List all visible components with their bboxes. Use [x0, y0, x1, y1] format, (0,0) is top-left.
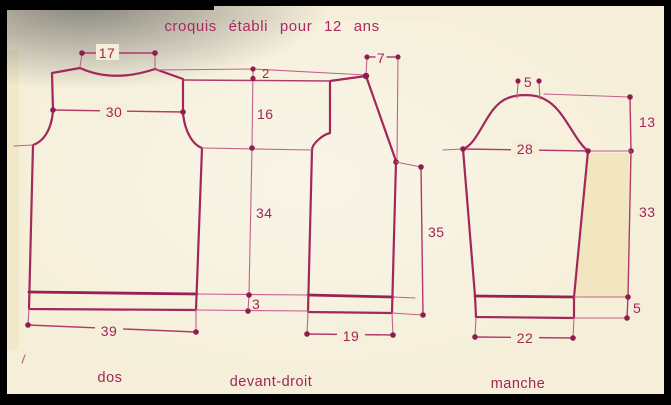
- armhole-depth-dot: [249, 145, 255, 151]
- ribbing-dim-dot-bottom: [245, 308, 251, 314]
- cuff-width-dot-right: [570, 335, 576, 341]
- shoulder-width-dot-left: [364, 54, 369, 59]
- shoulder-width-dot-right: [395, 54, 400, 59]
- cuff-width-value: 22: [517, 330, 534, 346]
- dos-chest-dim-dot-left: [50, 107, 56, 113]
- border-right: [664, 0, 671, 405]
- cap-height-value: 13: [639, 114, 656, 130]
- cuff-height-dot-top: [625, 294, 631, 300]
- cuff-width-dot-left: [472, 334, 478, 340]
- shoulder-lower-extension-line: [183, 80, 330, 81]
- shoulder-width-value: 7: [377, 50, 385, 66]
- armhole-depth-value: 16: [257, 106, 274, 122]
- underarm-length-value: 33: [639, 204, 656, 220]
- dos-hem-dim-dot-right: [193, 329, 199, 335]
- border-bottom: [0, 394, 671, 405]
- side-length-value: 34: [256, 205, 273, 221]
- border-top-left-thick: [0, 0, 214, 10]
- cuff-height-value: 5: [633, 300, 641, 316]
- dos-chest-dim-dot-right: [180, 109, 186, 115]
- cap-height-dot-top: [627, 94, 633, 100]
- cap-top-width-value: 5: [524, 74, 532, 90]
- dos-neck-dim-dot-right: [152, 50, 158, 56]
- shoulder-drop-dot-bottom: [250, 76, 255, 81]
- upper-width-dot-left: [460, 146, 466, 152]
- front-length-value: 35: [428, 224, 445, 240]
- dos-neck-width-value: 17: [99, 45, 116, 61]
- cap-height-dim-line: [630, 97, 631, 151]
- shoulder-drop-value: 2: [262, 66, 269, 81]
- pattern-diagram-svg: croquis établi pour 12 ans 17 30 39 dos: [0, 0, 671, 405]
- pattern-diagram-scan: croquis établi pour 12 ans 17 30 39 dos: [0, 0, 671, 405]
- devant-ribbing-line: [308, 295, 393, 297]
- dos-hem-dim-dot-left: [25, 322, 31, 328]
- front-length-dot-top: [418, 164, 424, 170]
- shoulder-drop-dot-top: [250, 66, 255, 71]
- dos-chest-width-value: 30: [106, 104, 123, 120]
- cuff-height-dim-line: [627, 297, 628, 318]
- devant-hem-dot-right: [390, 332, 396, 338]
- cap-top-dot-right: [536, 78, 541, 83]
- dos-piece-label: dos: [98, 370, 123, 386]
- cap-top-dot-left: [515, 78, 520, 83]
- ribbing-height-value: 3: [252, 296, 260, 312]
- border-left: [0, 0, 7, 405]
- cuff-height-dot-bottom: [624, 315, 630, 321]
- devant-piece-label: devant-droit: [230, 374, 313, 390]
- shoulder-neck-point-dot: [363, 73, 369, 79]
- manche-cuff-line: [475, 296, 574, 297]
- dos-neck-dim-dot-left: [79, 50, 85, 56]
- devant-hem-width-value: 19: [343, 328, 360, 344]
- ribbing-dim-dot-top: [246, 292, 252, 298]
- upper-width-value: 28: [517, 141, 534, 157]
- front-length-dot-bottom: [420, 312, 426, 318]
- manche-piece-label: manche: [491, 376, 546, 392]
- upper-width-dot-right: [585, 148, 591, 154]
- diagram-title: croquis établi pour 12 ans: [164, 18, 379, 35]
- dos-hem-width-value: 39: [101, 323, 118, 339]
- devant-hem-dot-left: [304, 331, 310, 337]
- dos-ribbing-line: [29, 292, 197, 294]
